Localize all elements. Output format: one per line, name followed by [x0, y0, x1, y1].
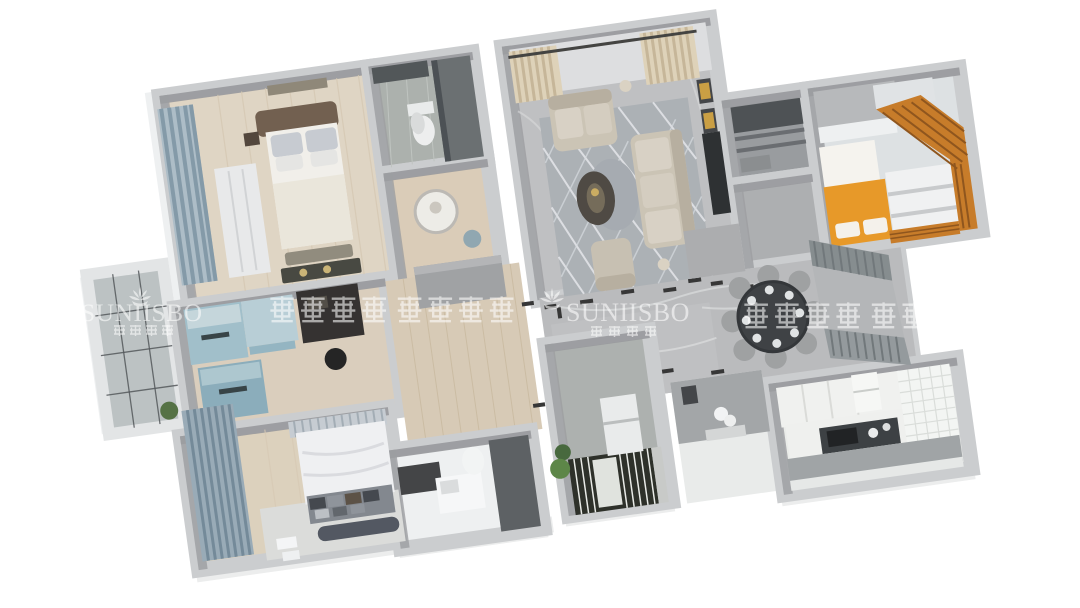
svg-text:SUNIISBO: SUNIISBO	[81, 298, 203, 327]
svg-text:SUNIISBO: SUNIISBO	[566, 298, 690, 327]
